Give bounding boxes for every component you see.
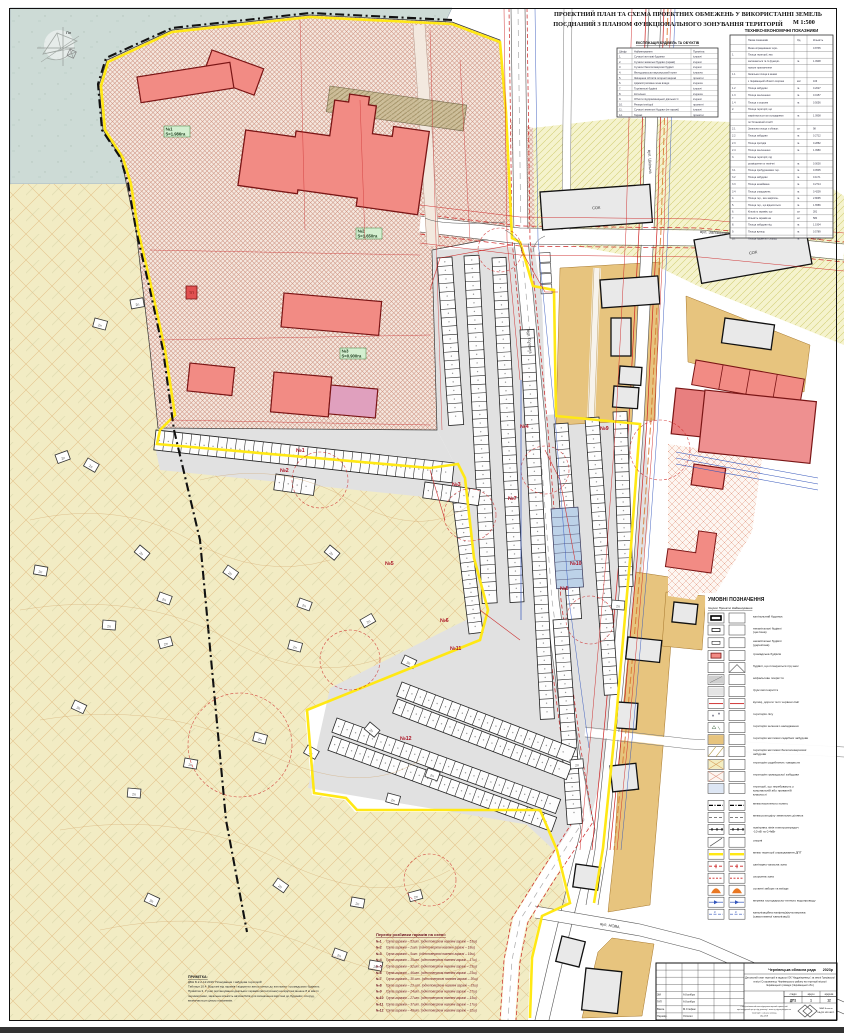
svg-text:1.0908: 1.0908 — [813, 60, 821, 63]
svg-text:Група гаражів – 30 шт. (однопо: Група гаражів – 30 шт. (одноповерхові на… — [386, 977, 478, 981]
svg-text:К: К — [714, 910, 716, 914]
svg-text:1.1904: 1.1904 — [813, 223, 821, 226]
svg-text:106: 106 — [813, 80, 818, 83]
svg-text:УМОВНІ ПОЗНАЧЕННЯ: УМОВНІ ПОЗНАЧЕННЯ — [708, 597, 765, 603]
svg-text:територія житлової садибної за: територія житлової садибної забудови — [753, 736, 809, 740]
svg-text:Площа прибудинкових тер.: Площа прибудинкових тер. — [748, 169, 780, 172]
svg-text:власності: власності — [753, 793, 767, 797]
svg-text:2.3: 2.3 — [732, 142, 736, 145]
svg-text:Гаражі: Гаражі — [634, 113, 643, 117]
svg-text:Площа озеленення: Площа озеленення — [748, 94, 771, 97]
svg-text:Загальна площа в межах: Загальна площа в межах — [748, 73, 778, 76]
svg-text:2.1: 2.1 — [732, 128, 736, 131]
svg-text:№9: №9 — [600, 426, 609, 432]
svg-text:вулиці, дороги та їх червоні л: вулиці, дороги та їх червоні лінії — [753, 700, 799, 704]
svg-text:Існуючі Проектні Наймен: Існуючі Проектні Найменування — [708, 606, 753, 610]
svg-text:1.: 1. — [619, 55, 621, 59]
svg-text:1.3: 1.3 — [732, 94, 736, 97]
svg-text:ГАП: ГАП — [657, 1000, 662, 1004]
svg-text:Площа забудови: Площа забудови — [748, 176, 768, 179]
svg-text:Група гаражів – 92шт. (однопов: Група гаражів – 92шт. (одноповерхові наз… — [386, 965, 477, 969]
svg-text:2023р: 2023р — [823, 968, 834, 972]
svg-text:ТЕХНІКО-ЕКОНОМІЧНІ ПОКАЗНИКИ: ТЕХНІКО-ЕКОНОМІЧНІ ПОКАЗНИКИ — [745, 28, 818, 33]
svg-text:опорні: опорні — [753, 839, 763, 843]
svg-text:№3: №3 — [376, 952, 382, 956]
svg-text:межа населеного пункту: межа населеного пункту — [753, 802, 788, 806]
svg-text:Площа вулиць: Площа вулиць — [748, 230, 766, 233]
svg-text:Група гаражів – 46шт. (однопов: Група гаражів – 46шт. (одноповерхові наз… — [386, 971, 477, 975]
svg-text:3.1: 3.1 — [732, 169, 736, 172]
svg-text:існуючі: існуючі — [693, 97, 702, 101]
svg-text:№7: №7 — [508, 496, 517, 502]
svg-text:0.4209: 0.4209 — [813, 191, 821, 194]
svg-text:Група гаражів – 49шт. (однопов: Група гаражів – 49шт. (одноповерхові наз… — [386, 1009, 477, 1013]
svg-text:12: 12 — [827, 999, 831, 1003]
svg-text:281: 281 — [813, 210, 818, 213]
svg-text:Викон.: Викон. — [657, 1007, 665, 1011]
svg-text:залишається та їх функціо-: залишається та їх функціо- — [748, 60, 780, 63]
svg-text:Найменування: Найменування — [634, 49, 653, 53]
svg-text:8.: 8. — [619, 92, 621, 96]
svg-text:4.: 4. — [619, 71, 621, 75]
svg-text:2п: 2п — [38, 570, 43, 575]
svg-text:існуючі: існуючі — [693, 65, 702, 69]
svg-text:№2: №2 — [376, 946, 382, 950]
svg-text:Торгівельні будівлі: Торгівельні будівлі — [634, 87, 657, 91]
svg-text:№2: №2 — [280, 468, 289, 474]
svg-text:МАЙ Бажали: МАЙ Бажали — [819, 1007, 833, 1010]
svg-text:3.3: 3.3 — [732, 183, 736, 186]
svg-text:1: 1 — [810, 999, 812, 1003]
svg-text:Кількість гаражів на: Кількість гаражів на — [748, 217, 771, 220]
svg-text:ТП: ТП — [189, 290, 194, 295]
svg-text:№1: №1 — [296, 448, 305, 454]
svg-text:5.: 5. — [732, 204, 734, 207]
svg-text:3.: 3. — [619, 65, 621, 69]
svg-text:в місті Сторожинець Чернівецьк: в місті Сторожинець Чернівецького району… — [753, 980, 826, 983]
svg-text:Сучасні земельні будови (гараж: Сучасні земельні будови (гаражі) — [634, 60, 675, 64]
svg-text:3.: 3. — [732, 156, 734, 159]
svg-text:Сучасні житлові будинки: Сучасні житлові будинки — [634, 55, 665, 59]
svg-text:ЧЦ-1208: ЧЦ-1208 — [760, 1016, 769, 1018]
svg-text:охоронна зона: охоронна зона — [753, 875, 774, 879]
svg-text:3.2: 3.2 — [732, 176, 736, 179]
svg-text:Примітка 3. У разі розташуванн: Примітка 3. У разі розташування декілько… — [188, 989, 319, 993]
svg-text:територія зеленого насадження: територія зеленого насадження — [753, 724, 799, 728]
svg-text:територія садибничих товариств: територія садибничих товариств — [753, 761, 800, 765]
svg-text:№1: №1 — [376, 939, 382, 943]
svg-text:останні забори та виїзди: останні забори та виїзди — [753, 887, 789, 891]
svg-text:території і навчань громад: території і навчань громад — [752, 1011, 777, 1014]
svg-text:2п: 2п — [135, 302, 140, 307]
svg-text:2.: 2. — [619, 60, 621, 64]
svg-text:Назва показників: Назва показників — [748, 39, 769, 42]
svg-text:(самопливної каналізації): (самопливної каналізації) — [753, 914, 790, 918]
svg-text:10.: 10. — [732, 238, 736, 241]
svg-text:1.1: 1.1 — [732, 73, 736, 76]
svg-text:з Чернівецькій області охорони: з Чернівецькій області охорони — [748, 80, 785, 83]
svg-text:1.2: 1.2 — [732, 87, 736, 90]
svg-text:Об'єкти підприємницької діяльн: Об'єкти підприємницької діяльності — [634, 97, 679, 101]
svg-text:А.Колібра: А.Колібра — [683, 1000, 695, 1004]
svg-text:S=1.986га: S=1.986га — [166, 132, 186, 137]
svg-text:Загальна площа з облашт.: Загальна площа з облашт. — [748, 128, 779, 131]
svg-text:Площа території, під: Площа території, під — [748, 156, 773, 159]
svg-text:км²: км² — [797, 80, 801, 83]
svg-text:існуючі: існуючі — [693, 108, 702, 112]
svg-text:Кількість гаражів, що: Кількість гаражів, що — [748, 210, 773, 213]
svg-text:межа розподілу земельних ділян: межа розподілу земельних ділянок — [753, 814, 804, 818]
svg-text:№12: №12 — [376, 1009, 384, 1013]
svg-text:існуюча: існуюча — [693, 71, 703, 75]
svg-text:Спеціалізований малопідприємни: Спеціалізований малопідприємницький прив… — [741, 1005, 788, 1008]
svg-text:межа території опрацювання ДПТ: межа території опрацювання ДПТ — [753, 851, 802, 855]
svg-text:Таблиця 10.4. Відстані від гар: Таблиця 10.4. Відстані від гаражів і від… — [188, 985, 320, 989]
svg-text:Площа території, яка: Площа території, яка — [748, 54, 773, 57]
svg-text:2п: 2п — [355, 902, 360, 907]
svg-text:громадська будівля: громадська будівля — [753, 652, 781, 656]
svg-text:Л.Копил: Л.Копил — [683, 1014, 693, 1018]
svg-text:9.: 9. — [619, 97, 621, 101]
svg-text:Кількість: Кількість — [813, 39, 824, 42]
svg-text:0.2712: 0.2712 — [813, 135, 821, 138]
svg-text:Площа будівель і споруд: Площа будівель і споруд — [748, 238, 777, 241]
svg-text:Детальний план території в кад: Детальний план території в кадастрі ОК '… — [745, 977, 835, 980]
svg-text:№12: №12 — [400, 736, 412, 742]
svg-text:№5: №5 — [376, 965, 382, 969]
svg-text:9.: 9. — [732, 230, 734, 233]
svg-text:капітальний будинок: капітальний будинок — [753, 614, 783, 618]
svg-text:0.5056: 0.5056 — [813, 101, 821, 104]
svg-text:№4: №4 — [520, 424, 529, 430]
svg-text:Шифр: Шифр — [619, 49, 627, 53]
svg-text:-10 кВ та 0.4кВт: -10 кВ та 0.4кВт — [753, 830, 776, 834]
svg-text:проектні: проектні — [693, 113, 704, 117]
svg-text:Група гаражів – 5шт. (однопове: Група гаражів – 5шт. (одноповерхові назе… — [386, 952, 475, 956]
svg-text:№6: №6 — [440, 618, 449, 624]
svg-text:1.4: 1.4 — [732, 101, 736, 104]
svg-text:ДБН Б.2.2-12:2019 'Планування: ДБН Б.2.2-12:2019 'Планування і забудова… — [188, 980, 262, 984]
svg-text:закріплюється за господарями: закріплюється за господарями — [748, 115, 784, 118]
svg-text:3.4: 3.4 — [732, 191, 736, 194]
svg-text:проектні: проектні — [693, 102, 704, 106]
svg-text:Площа забудови: Площа забудови — [748, 135, 768, 138]
svg-text:Площа з охорони: Площа з охорони — [748, 101, 769, 104]
svg-text:по Установчий спосіб: по Установчий спосіб — [748, 121, 773, 124]
svg-text:4.: 4. — [732, 197, 734, 200]
svg-text:1.0980: 1.0980 — [813, 149, 821, 152]
svg-text:Група гаражів – 27шт. (однопов: Група гаражів – 27шт. (одноповерхові наз… — [386, 996, 477, 1000]
svg-text:Площа тер., яка закріплю-: Площа тер., яка закріплю- — [748, 197, 779, 200]
svg-text:1.6586: 1.6586 — [813, 204, 821, 207]
svg-text:0.2714: 0.2714 — [813, 183, 821, 186]
svg-text:Група гаражів – 37шт. (однопов: Група гаражів – 37шт. (одноповерхові наз… — [386, 1002, 477, 1006]
svg-text:№10: №10 — [376, 996, 384, 1000]
svg-text:2.: 2. — [732, 108, 734, 111]
svg-text:територія лісу: територія лісу — [753, 712, 774, 716]
svg-text:1.: 1. — [732, 54, 734, 57]
svg-text:ДП1: ДП1 — [790, 999, 797, 1003]
svg-text:аркуш: аркуш — [808, 993, 815, 996]
svg-text:територія громадської забудови: територія громадської забудови — [753, 773, 799, 777]
svg-text:Резерв territорії: Резерв territорії — [634, 102, 653, 106]
svg-text:S=0.900га: S=0.900га — [342, 354, 362, 359]
svg-text:існуюча: існуюча — [693, 81, 703, 85]
svg-text:5.: 5. — [619, 76, 621, 80]
svg-text:1.0908: 1.0908 — [813, 115, 821, 118]
svg-text:6.: 6. — [732, 210, 734, 213]
svg-text:Площа території, що: Площа території, що — [748, 108, 773, 111]
svg-text:7.: 7. — [732, 217, 734, 220]
svg-text:2п: 2п — [107, 624, 111, 628]
svg-text:0.0000: 0.0000 — [813, 162, 821, 165]
svg-text:Група гаражів – 23 шт. (однопо: Група гаражів – 23 шт. (одноповерхові на… — [386, 983, 478, 987]
svg-text:існуючі: існуючі — [693, 55, 702, 59]
svg-text:№6: №6 — [376, 971, 382, 975]
svg-text:0.5789: 0.5789 — [813, 230, 821, 233]
svg-text:архітектурний центр від дозвол: архітектурний центр від дозволу і захист… — [737, 1008, 791, 1011]
svg-text:Перелік розбивки гаражів на сх: Перелік розбивки гаражів на схемі: — [376, 932, 446, 937]
svg-text:0.2882: 0.2882 — [813, 142, 821, 145]
svg-text:мережа господарсько-питного во: мережа господарсько-питного водопроводу — [753, 899, 816, 903]
svg-text:Група гаражів – 24шт. (однопов: Група гаражів – 24шт. (одноповерхові наз… — [386, 990, 477, 994]
svg-text:Чернівецької громади (Чернівец: Чернівецької громади (Чернівецької обл.) — [766, 984, 814, 987]
svg-text:№5: №5 — [385, 561, 394, 567]
svg-text:2.2: 2.2 — [732, 135, 736, 138]
svg-text:Примітка: Примітка — [693, 49, 705, 53]
svg-text:ПОЄДНАНИЙ З ПЛАНОМ ФУНКЦІОНАЛЬ: ПОЄДНАНИЙ З ПЛАНОМ ФУНКЦІОНАЛЬНОГО ЗОНУВ… — [553, 20, 783, 28]
svg-text:10.: 10. — [619, 102, 623, 106]
svg-text:Котельня: Котельня — [634, 92, 646, 96]
svg-text:ЗМ: ЗМ — [657, 993, 661, 997]
svg-text:6.: 6. — [619, 81, 621, 85]
svg-text:існуючі: існуючі — [693, 87, 702, 91]
svg-text:периметрами, загальна кількіст: периметрами, загальна кількість автомобі… — [188, 994, 315, 998]
svg-text:Межа опрацювання тери-: Межа опрацювання тери- — [748, 47, 778, 50]
svg-text:№4: №4 — [376, 958, 382, 962]
svg-text:Площа незаймана: Площа незаймана — [748, 183, 770, 186]
svg-text:асфальтове покриття: асфальтове покриття — [753, 676, 784, 680]
svg-text:7.: 7. — [619, 87, 621, 91]
svg-text:ЕКСПЛІКАЦІЯ БУДІВЕЛЬ ТА ОБʼЄКТ: ЕКСПЛІКАЦІЯ БУДІВЕЛЬ ТА ОБʼЄКТІВ — [636, 41, 700, 45]
svg-text:0.0505: 0.0505 — [813, 169, 821, 172]
svg-text:(дерев'яна): (дерев'яна) — [753, 643, 769, 647]
svg-text:2.8095: 2.8095 — [813, 197, 821, 200]
svg-text:2п: 2п — [132, 792, 136, 796]
svg-text:Од.: Од. — [797, 39, 801, 42]
svg-text:проектні: проектні — [693, 76, 704, 80]
svg-text:ґрунтові покриття: ґрунтові покриття — [753, 688, 779, 692]
svg-text:2п: 2п — [575, 763, 579, 767]
svg-text:А.Колібра: А.Колібра — [683, 993, 695, 997]
svg-text:№8: №8 — [376, 983, 382, 987]
svg-text:Група гаражів – 53шт. (однопов: Група гаражів – 53шт. (одноповерхові наз… — [386, 939, 477, 943]
svg-text:ПРОЕКТНИЙ ПЛАН ТА СХЕМА ПРОЕКТ: ПРОЕКТНИЙ ПЛАН ТА СХЕМА ПРОЕКТНИХ ОБМЕЖЕ… — [554, 10, 822, 18]
svg-text:Площа тер., що відносяться: Площа тер., що відносяться — [748, 204, 781, 207]
svg-text:№7: №7 — [376, 977, 382, 981]
svg-text:12.: 12. — [619, 113, 623, 117]
svg-text:Фельдшерсько-акушерський пункт: Фельдшерсько-акушерський пункт — [634, 71, 678, 75]
svg-text:2п: 2п — [616, 604, 620, 608]
svg-text:Група гаражів – 35шт. (однопов: Група гаражів – 35шт. (одноповерхові наз… — [386, 958, 477, 962]
svg-text:Чернівецька обласна рада: Чернівецька обласна рада — [768, 968, 817, 972]
svg-text:нальне призначення: нальне призначення — [748, 67, 772, 70]
svg-text:2.4: 2.4 — [732, 149, 736, 152]
svg-text:0.0157: 0.0157 — [813, 94, 821, 97]
svg-text:0.2027: 0.2027 — [813, 87, 821, 90]
svg-text:НАДІЯ МИХАЙЛ.: НАДІЯ МИХАЙЛ. — [817, 1011, 835, 1014]
svg-text:Сучасні земельні будови (не га: Сучасні земельні будови (не гаражі) — [634, 108, 679, 112]
svg-text:аркушів: аркушів — [825, 993, 834, 996]
svg-text:існуюча: існуюча — [693, 92, 703, 96]
svg-text:№9: №9 — [376, 990, 382, 994]
svg-text:№10: №10 — [570, 561, 582, 567]
svg-text:розміщення та технічні: розміщення та технічні — [748, 162, 775, 165]
svg-text:S=1.650га: S=1.650га — [358, 234, 378, 239]
svg-text:0.1171: 0.1171 — [813, 176, 821, 179]
svg-text:М 1:500: М 1:500 — [793, 19, 815, 26]
svg-text:Адміністративна зона влади: Адміністративна зона влади — [634, 81, 670, 85]
svg-text:11.: 11. — [619, 108, 623, 112]
svg-text:Площа забудови під: Площа забудови під — [748, 223, 772, 226]
svg-text:Площа забудови: Площа забудови — [748, 87, 768, 90]
svg-text:санітарно-захисна зона: санітарно-захисна зона — [753, 863, 787, 867]
svg-text:№8: №8 — [560, 586, 569, 592]
svg-text:Зміщення об'єктів опорної мере: Зміщення об'єктів опорної мережі — [634, 76, 677, 80]
svg-text:580: 580 — [813, 217, 818, 220]
svg-text:забудови: забудови — [753, 752, 766, 756]
svg-text:стадія: стадія — [790, 993, 798, 996]
svg-text:визначається сумою показників.: визначається сумою показників. — [188, 998, 233, 1002]
svg-text:М.Стефюк: М.Стефюк — [683, 1007, 696, 1011]
svg-text:0.8735: 0.8735 — [813, 47, 821, 50]
svg-text:СОК: СОК — [592, 205, 601, 211]
svg-text:№11: №11 — [376, 1002, 383, 1006]
svg-text:Група гаражів – 2шт. (однопове: Група гаражів – 2шт. (одноповерхові назе… — [386, 946, 475, 950]
svg-text:існуючі: існуючі — [693, 60, 702, 64]
svg-text:8.: 8. — [732, 223, 734, 226]
svg-text:№3: №3 — [452, 482, 461, 488]
svg-text:Площа проїздів: Площа проїздів — [748, 142, 767, 145]
svg-text:1.7105: 1.7105 — [813, 238, 821, 241]
svg-text:Перевір.: Перевір. — [657, 1014, 668, 1018]
svg-text:будівлі, що плануються під зно: будівлі, що плануються під знос — [753, 664, 799, 668]
svg-text:К: К — [735, 910, 737, 914]
svg-text:Сучасні багатоповерхові будівл: Сучасні багатоповерхові будівлі — [634, 65, 674, 69]
svg-text:(цегляна): (цегляна) — [753, 630, 767, 634]
svg-text:Пн: Пн — [66, 30, 72, 35]
svg-text:ПРИМІТКА:: ПРИМІТКА: — [188, 975, 208, 979]
svg-text:Площа споруджень: Площа споруджень — [748, 191, 771, 194]
svg-text:Площа озеленення: Площа озеленення — [748, 149, 771, 152]
svg-text:№11: №11 — [450, 646, 461, 652]
